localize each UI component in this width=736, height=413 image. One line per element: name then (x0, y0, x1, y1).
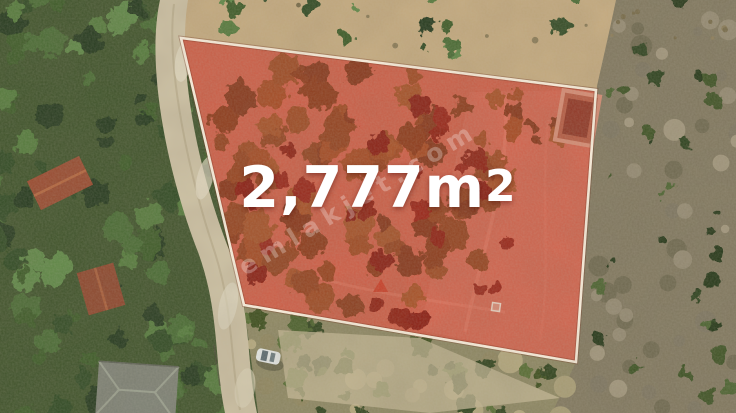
parcel-area-label: 2,777m2 (239, 155, 516, 221)
aerial-photo: emlakjet.com 2,777m2 (0, 0, 736, 413)
